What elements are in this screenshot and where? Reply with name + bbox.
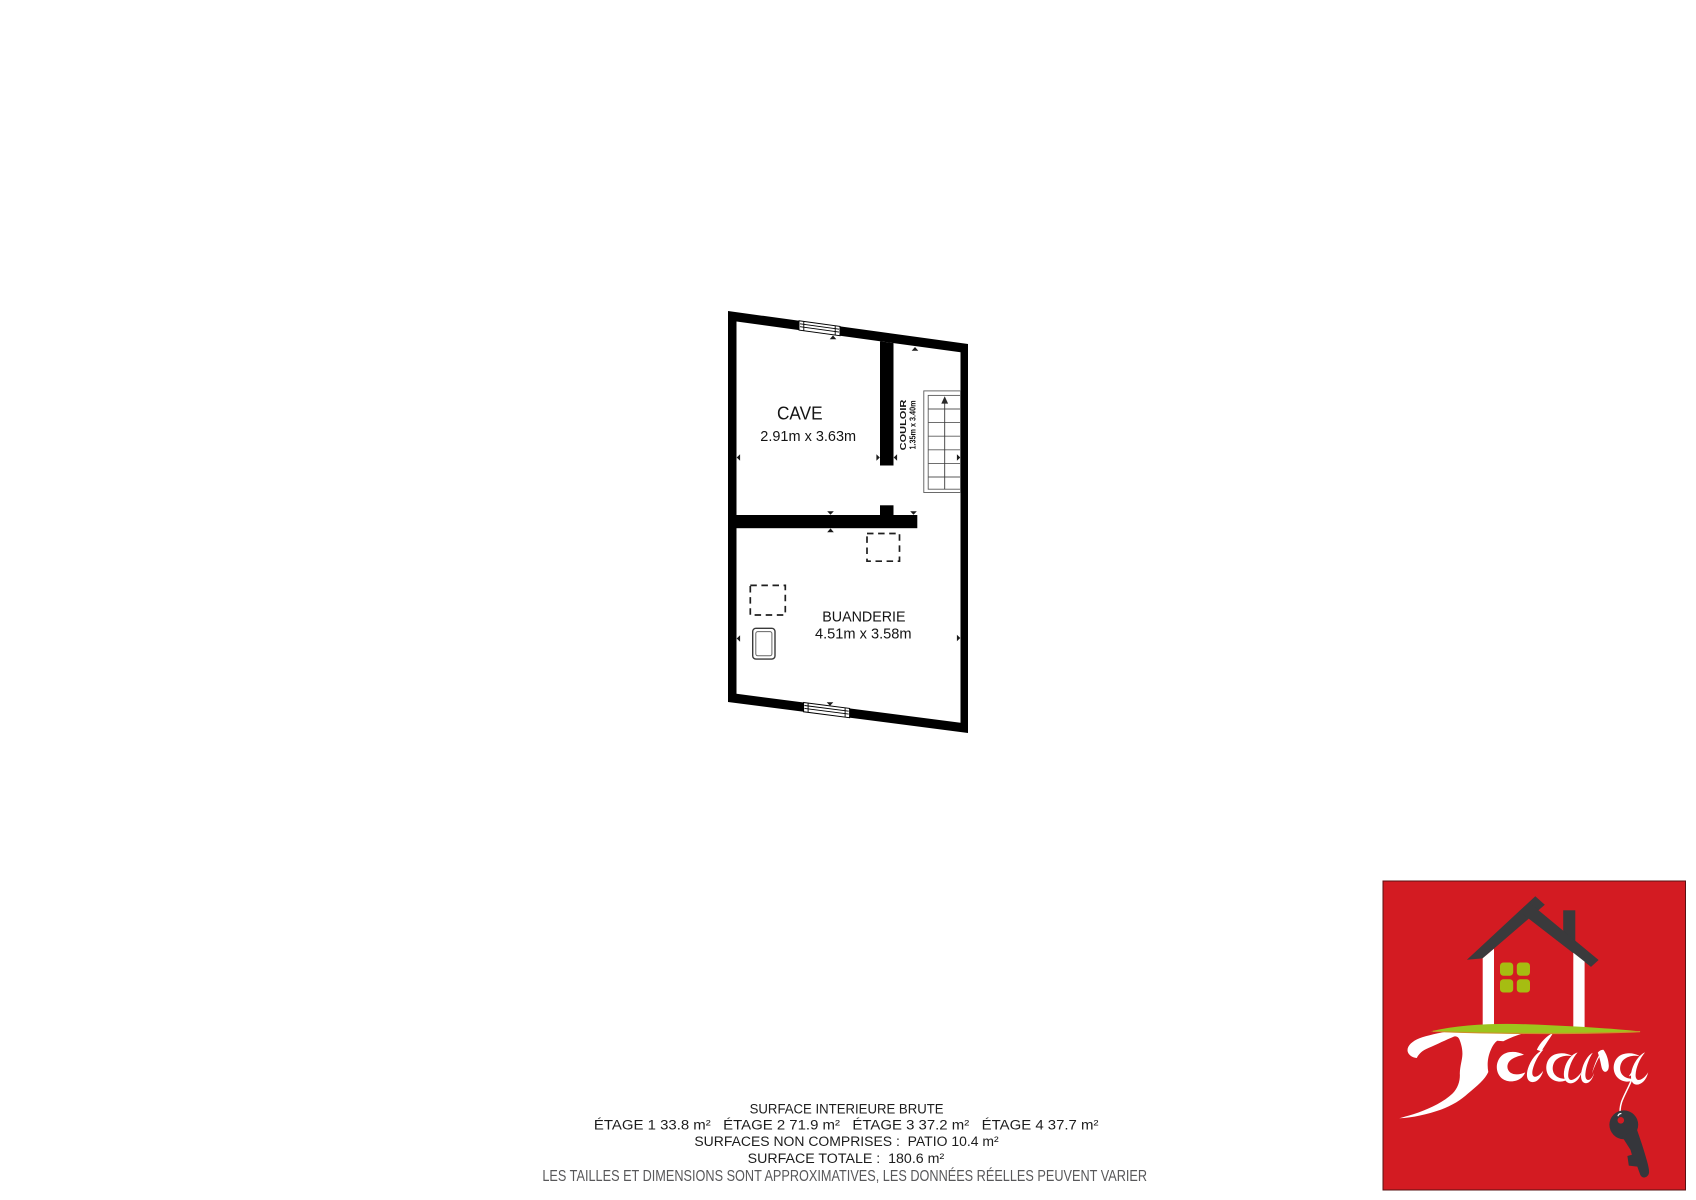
svg-text:SURFACES NON COMPRISES : PATI: SURFACES NON COMPRISES : PATIO 10.4 m²	[694, 1134, 999, 1149]
svg-text:SURFACE INTERIEURE BRUTE: SURFACE INTERIEURE BRUTE	[750, 1102, 944, 1117]
svg-text:4.51m x 3.58m: 4.51m x 3.58m	[815, 626, 912, 642]
svg-text:BUANDERIE: BUANDERIE	[822, 609, 905, 625]
svg-text:1.35m x 3.40m: 1.35m x 3.40m	[909, 400, 918, 449]
svg-text:LES TAILLES ET DIMENSIONS SONT: LES TAILLES ET DIMENSIONS SONT APPROXIMA…	[542, 1168, 1147, 1185]
svg-text:ÉTAGE 1 33.8 m² ÉTAGE 2 71.9: ÉTAGE 1 33.8 m² ÉTAGE 2 71.9 m² ÉTAGE 3 …	[594, 1118, 1099, 1133]
svg-text:COULOIR: COULOIR	[899, 399, 908, 450]
svg-text:2.91m x 3.63m: 2.91m x 3.63m	[760, 429, 856, 445]
svg-text:CAVE: CAVE	[777, 402, 823, 423]
svg-text:SURFACE TOTALE : 180.6 m²: SURFACE TOTALE : 180.6 m²	[748, 1151, 945, 1166]
